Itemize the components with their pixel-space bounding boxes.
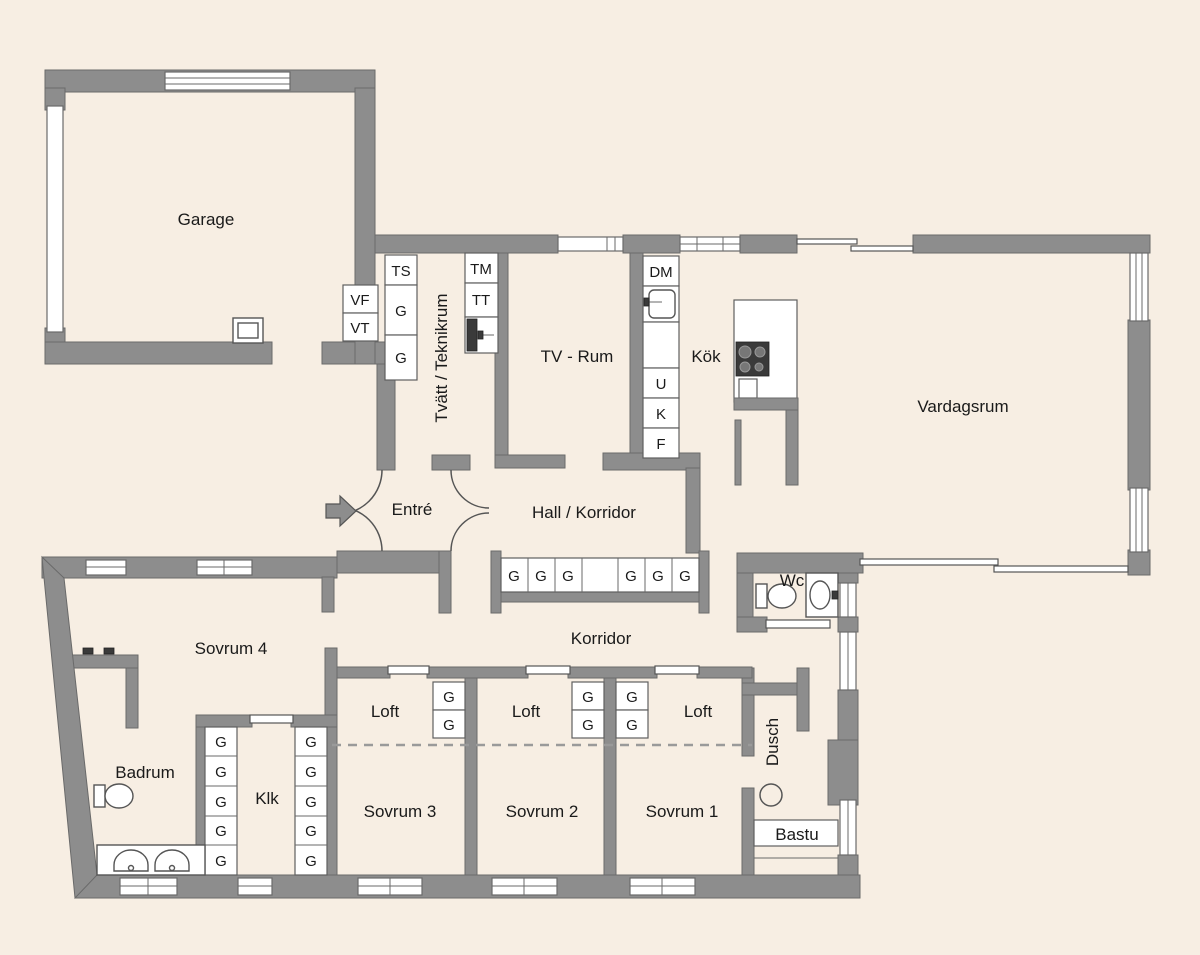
label-g: G <box>305 764 317 781</box>
label-tt: TT <box>472 292 490 309</box>
bastu-heater <box>760 784 782 806</box>
label-g: G <box>305 823 317 840</box>
label-vt: VT <box>350 320 369 337</box>
washing-machine <box>465 317 498 353</box>
floorplan-drawing: Garage Tvätt / Teknikrum TV - Rum Kök Va… <box>0 0 1200 955</box>
top-sliding-door <box>797 239 913 251</box>
klk-window <box>238 878 272 895</box>
label-wc: Wc <box>780 571 805 590</box>
label-tvrum: TV - Rum <box>541 347 614 366</box>
label-loft-1: Loft <box>371 702 400 721</box>
label-bastu: Bastu <box>775 825 818 844</box>
main-top-wall-b <box>623 235 680 253</box>
label-g: G <box>215 823 227 840</box>
sovrum3-window <box>358 878 422 895</box>
hall-wardrobes <box>491 551 709 613</box>
hall-door-leaf-1 <box>451 470 489 508</box>
loft-wall-3 <box>568 667 657 678</box>
labels: Garage Tvätt / Teknikrum TV - Rum Kök Va… <box>115 210 1008 870</box>
sovrum1-pocket-door <box>655 666 699 674</box>
label-tm: TM <box>470 261 492 278</box>
label-ts: TS <box>391 263 410 280</box>
label-g: G <box>626 717 638 734</box>
tv-right-wall <box>630 253 643 455</box>
label-sovrum4: Sovrum 4 <box>195 639 268 658</box>
label-klk: Klk <box>255 789 279 808</box>
hall-post-left <box>439 551 451 613</box>
label-g: G <box>562 568 574 585</box>
sovrum4-window-2 <box>197 560 252 575</box>
klk-top-wall-b <box>291 715 337 727</box>
label-dusch: Dusch <box>763 718 782 766</box>
label-tvatt: Tvätt / Teknikrum <box>432 293 451 422</box>
wc-sliding-door <box>766 620 830 628</box>
tvatt-bottom-stub <box>432 455 470 470</box>
label-g: G <box>215 734 227 751</box>
right-window-2 <box>1130 488 1148 552</box>
kitchen-cabinet <box>643 322 679 368</box>
hall-kitchen-wall <box>686 468 700 553</box>
sovrum4-window-1 <box>86 560 126 575</box>
label-loft-3: Loft <box>684 702 713 721</box>
label-g: G <box>215 794 227 811</box>
entre-bottom-wall <box>337 551 451 573</box>
wc-sink <box>806 573 838 617</box>
loft-wall-2 <box>427 667 528 678</box>
island-bar <box>734 398 798 410</box>
right-wall-bottom-corner <box>1128 550 1150 575</box>
loft-wall-1 <box>332 667 390 678</box>
top-window-tvrum <box>558 237 623 251</box>
island-bar-leg <box>786 410 798 485</box>
island-bar-support <box>735 420 741 485</box>
label-g: G <box>395 350 407 367</box>
garage-drain <box>233 318 263 343</box>
garage-left-window <box>47 106 63 332</box>
tv-bottom-wall <box>495 455 565 468</box>
label-g: G <box>395 303 407 320</box>
hall-door-leaf-2 <box>451 513 489 551</box>
sovrum2-window <box>492 878 557 895</box>
sovrum3-pocket-door <box>388 666 429 674</box>
sovrum1-window <box>630 878 695 895</box>
label-g: G <box>215 764 227 781</box>
label-g: G <box>305 734 317 751</box>
label-g: G <box>508 568 520 585</box>
wing-right-b <box>838 617 858 632</box>
badrum-hook-1 <box>83 648 93 654</box>
sovrum4-stub <box>322 577 334 612</box>
label-f: F <box>656 436 665 453</box>
wc-window <box>840 583 856 617</box>
label-g: G <box>679 568 691 585</box>
label-kok: Kök <box>691 347 721 366</box>
kitchen-island <box>734 300 798 485</box>
label-g: G <box>215 853 227 870</box>
label-vardagsrum: Vardagsrum <box>917 397 1008 416</box>
wing-left-slanted-wall <box>42 557 97 898</box>
label-g: G <box>305 853 317 870</box>
korridor-window <box>840 632 856 690</box>
garage-bottom-wall <box>45 342 272 364</box>
dusch-left-lower <box>742 788 754 875</box>
badrum-toilet <box>94 784 133 808</box>
klk-sliding-door <box>250 715 293 723</box>
badrum-hook-2 <box>104 648 114 654</box>
floorplan-page: Garage Tvätt / Teknikrum TV - Rum Kök Va… <box>0 0 1200 955</box>
label-u: U <box>656 376 667 393</box>
label-sovrum3: Sovrum 3 <box>364 802 437 821</box>
divider-sov3-sov2 <box>465 678 477 875</box>
klk-top-wall-a <box>196 715 252 727</box>
bastu-window <box>840 800 856 855</box>
label-garage: Garage <box>178 210 235 229</box>
label-sovrum1: Sovrum 1 <box>646 802 719 821</box>
right-window-1 <box>1130 253 1148 321</box>
main-top-wall-d <box>913 235 1150 253</box>
label-vf: VF <box>350 292 369 309</box>
wing-right-block <box>828 740 858 805</box>
dusch-partition <box>797 668 809 731</box>
label-g: G <box>305 794 317 811</box>
loft-wall-4 <box>697 667 752 678</box>
divider-sov2-sov1 <box>604 678 616 875</box>
label-loft-2: Loft <box>512 702 541 721</box>
label-g: G <box>582 717 594 734</box>
dusch-top-wall <box>742 683 800 695</box>
dusch-left-upper <box>742 668 754 756</box>
label-badrum: Badrum <box>115 763 175 782</box>
vardagsrum-sliding-door <box>860 559 1128 572</box>
wing-bottom-wall <box>75 875 860 898</box>
label-hall: Hall / Korridor <box>532 503 636 522</box>
main-top-wall-c <box>740 235 797 253</box>
label-g: G <box>652 568 664 585</box>
label-k: K <box>656 406 666 423</box>
badrum-vanity <box>97 845 205 875</box>
sovrum2-pocket-door <box>526 666 570 674</box>
badrum-right-wall <box>126 668 138 728</box>
label-entre: Entré <box>392 500 433 519</box>
kitchen-sink <box>643 286 679 322</box>
label-g: G <box>443 689 455 706</box>
right-wall-mid <box>1128 320 1150 490</box>
wing-top-wall-right <box>737 553 863 573</box>
label-g: G <box>535 568 547 585</box>
entrance-arrow-icon <box>326 496 356 526</box>
label-g: G <box>582 689 594 706</box>
label-dm: DM <box>649 264 672 281</box>
top-window-kok <box>680 237 740 251</box>
label-g: G <box>625 568 637 585</box>
wing-right-a <box>838 573 858 583</box>
label-g: G <box>443 717 455 734</box>
badrum-window <box>120 878 177 895</box>
wc-bottom-stub <box>737 617 767 632</box>
main-top-wall-a <box>375 235 558 253</box>
label-g: G <box>626 689 638 706</box>
wing-right-c <box>838 690 858 740</box>
label-sovrum2: Sovrum 2 <box>506 802 579 821</box>
garage-door <box>165 72 290 90</box>
label-korridor: Korridor <box>571 629 632 648</box>
